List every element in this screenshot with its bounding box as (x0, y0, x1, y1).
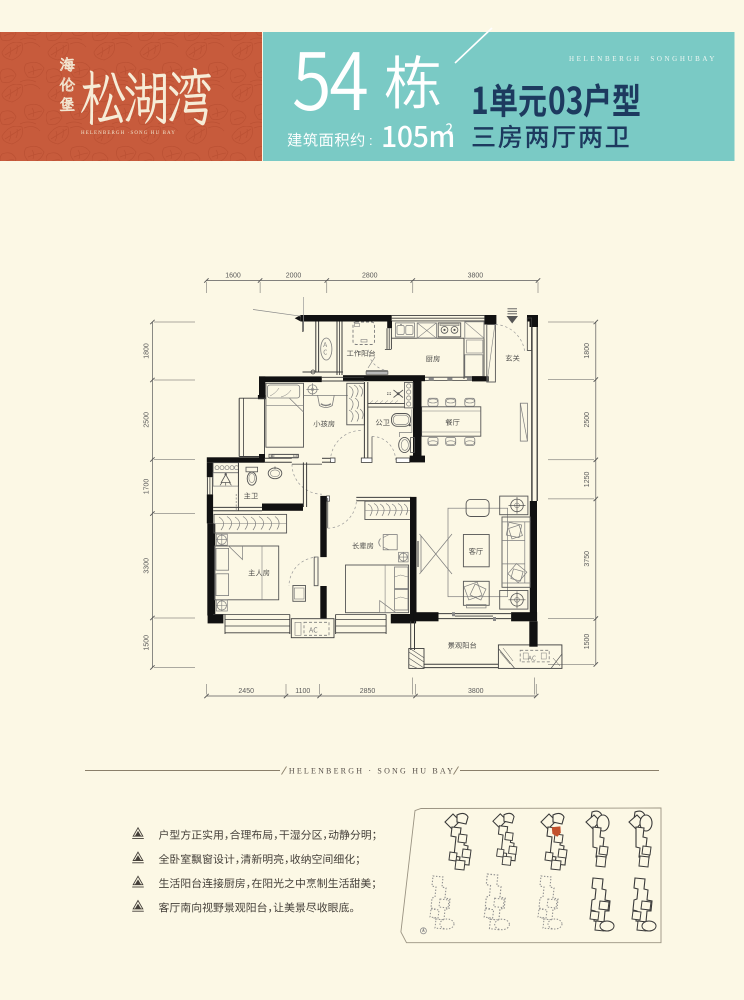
svg-text:2500: 2500 (584, 412, 591, 428)
svg-text:1700: 1700 (144, 479, 151, 495)
svg-text:1500: 1500 (584, 634, 591, 650)
svg-text:2000: 2000 (286, 273, 302, 280)
svg-text:2850: 2850 (360, 688, 376, 695)
svg-text:1250: 1250 (584, 472, 591, 488)
svg-text::: : (369, 133, 373, 148)
svg-text:HELENBERGH SONGHUBAY: HELENBERGH SONGHUBAY (569, 55, 717, 63)
svg-text:2450: 2450 (238, 688, 254, 695)
svg-text:HELENBERGH ·SONG HU BAY: HELENBERGH ·SONG HU BAY (81, 131, 176, 136)
svg-text:1600: 1600 (225, 273, 241, 280)
svg-text:3800: 3800 (468, 688, 484, 695)
svg-text:1800: 1800 (144, 343, 151, 359)
svg-text:1100: 1100 (295, 688, 310, 695)
svg-text:2500: 2500 (144, 412, 151, 428)
svg-text:HELENBERGH · SONG HU BAY: HELENBERGH · SONG HU BAY (289, 767, 455, 776)
svg-text:1500: 1500 (144, 635, 151, 651)
svg-text:2800: 2800 (362, 273, 378, 280)
svg-text:3300: 3300 (144, 558, 151, 574)
svg-text:3800: 3800 (468, 273, 484, 280)
svg-text:1800: 1800 (584, 343, 591, 359)
svg-text:3750: 3750 (584, 551, 591, 567)
